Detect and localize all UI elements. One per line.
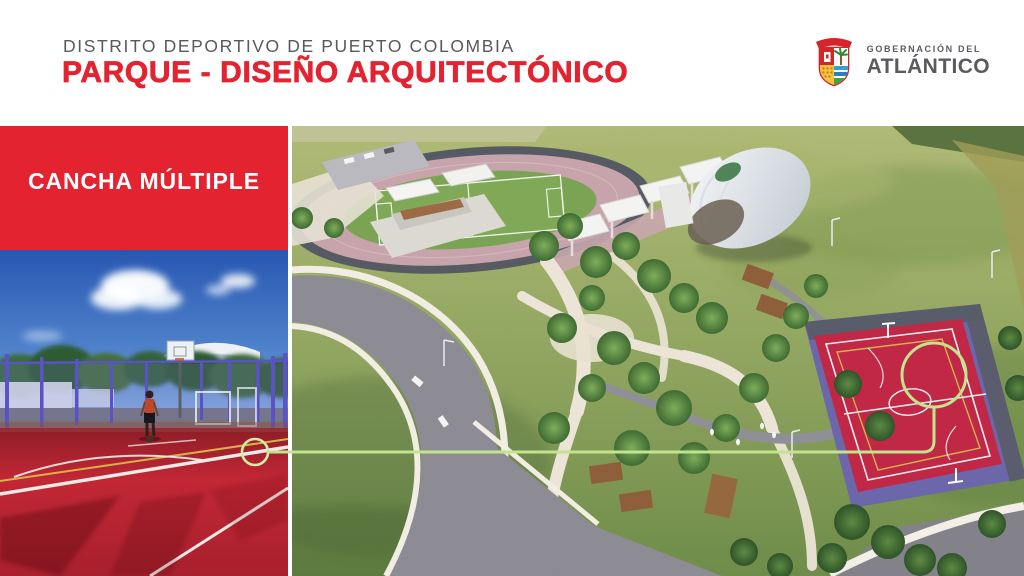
cancha-multiple-photo xyxy=(0,250,288,576)
government-logo: GOBERNACIÓN DEL ATLÁNTICO xyxy=(811,33,990,89)
logo-org-name-bottom: ATLÁNTICO xyxy=(867,55,990,79)
horizon-haze xyxy=(292,126,547,142)
court-floor-edge xyxy=(0,422,288,432)
basketball-court-image xyxy=(0,250,288,576)
slide-title: PARQUE - DISEÑO ARQUITECTÓNICO xyxy=(62,56,628,90)
park-masterplan-image xyxy=(292,126,1024,576)
header: DISTRITO DEPORTIVO DE PUERTO COLOMBIA PA… xyxy=(0,0,1024,126)
logo-org-name-top: GOBERNACIÓN DEL xyxy=(867,44,990,54)
logo-text: GOBERNACIÓN DEL ATLÁNTICO xyxy=(867,44,990,79)
park-aerial-render xyxy=(292,126,1024,576)
basketball xyxy=(147,436,154,443)
slide: DISTRITO DEPORTIVO DE PUERTO COLOMBIA PA… xyxy=(0,0,1024,576)
slide-kicker: DISTRITO DEPORTIVO DE PUERTO COLOMBIA xyxy=(63,36,515,57)
atlantico-crest-icon xyxy=(811,33,857,89)
section-label-box: CANCHA MÚLTIPLE xyxy=(0,126,288,250)
section-label-text: CANCHA MÚLTIPLE xyxy=(28,168,260,195)
